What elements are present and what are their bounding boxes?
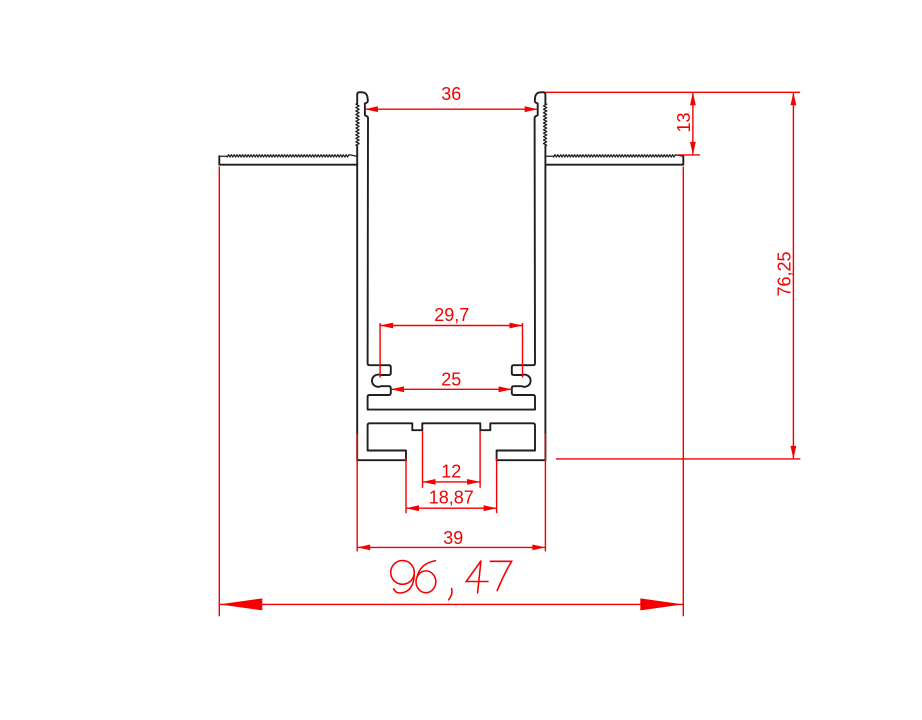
svg-text:39: 39	[443, 528, 463, 548]
svg-text:76,25: 76,25	[774, 251, 794, 296]
svg-text:13: 13	[674, 112, 694, 132]
svg-text:29,7: 29,7	[434, 305, 469, 325]
svg-text:36: 36	[441, 84, 461, 104]
svg-text:25: 25	[441, 370, 461, 390]
svg-text:18,87: 18,87	[429, 488, 474, 508]
svg-text:12: 12	[441, 462, 461, 482]
